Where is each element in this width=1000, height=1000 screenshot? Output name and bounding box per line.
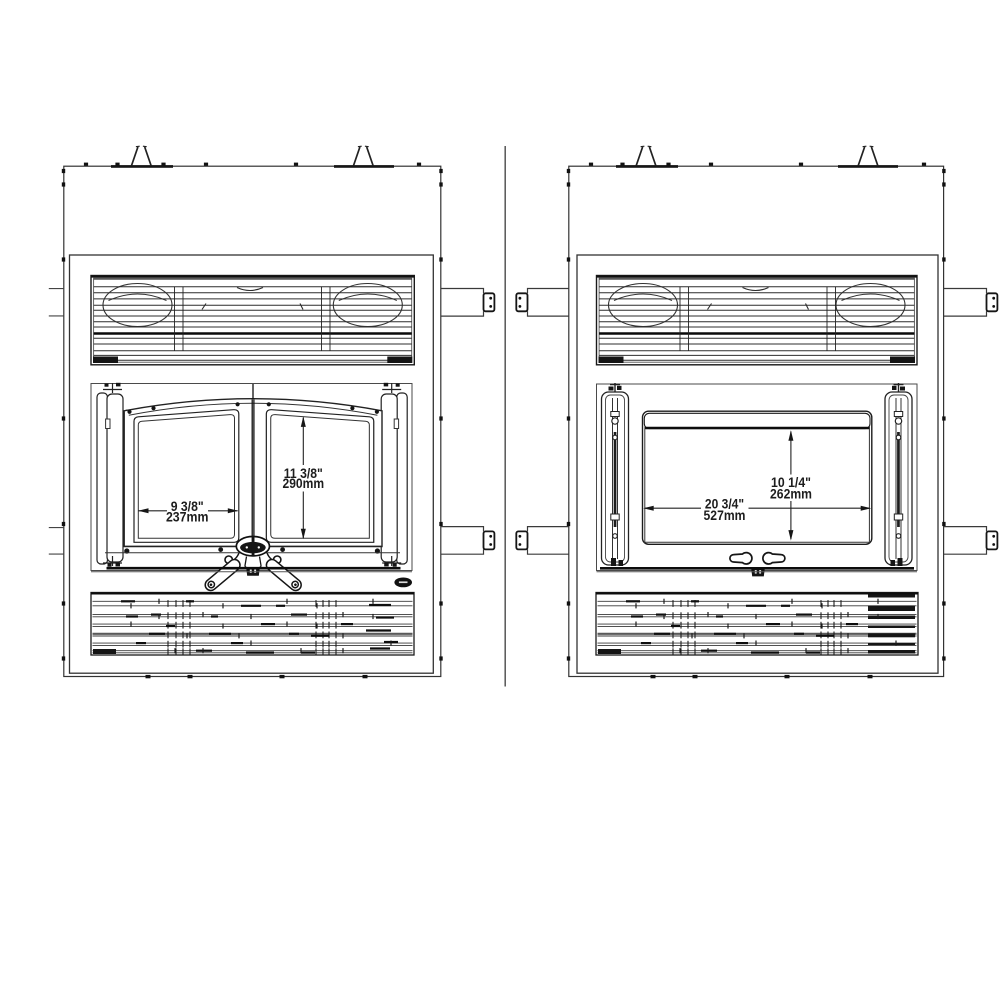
- svg-text:262mm: 262mm: [770, 487, 812, 502]
- svg-text:237mm: 237mm: [166, 509, 209, 524]
- svg-text:527mm: 527mm: [704, 508, 746, 523]
- svg-text:290mm: 290mm: [283, 476, 325, 491]
